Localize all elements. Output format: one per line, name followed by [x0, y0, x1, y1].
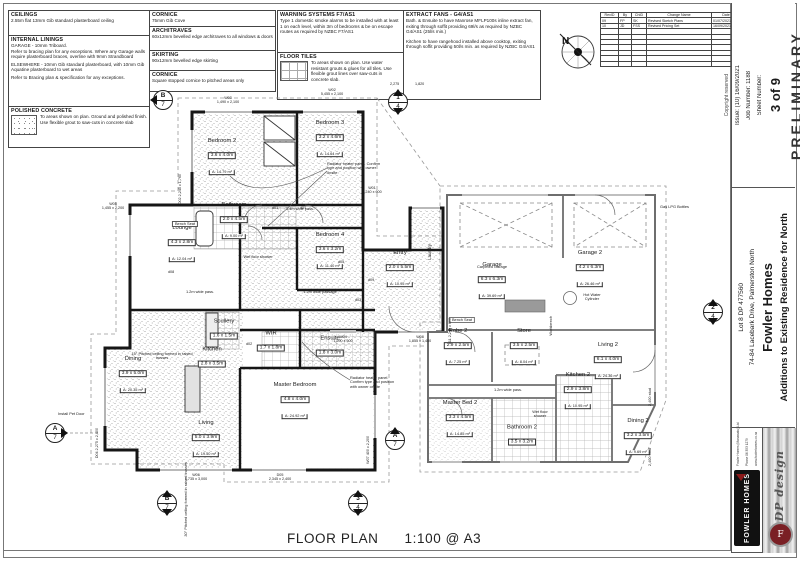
door-label-d11: d11 2,245 x 600: [448, 318, 452, 344]
room-label-dining: Dining3.9 x 5.0mA: 20.35 m²: [119, 356, 147, 396]
passage-note-12c: 1.2m wide pass.: [494, 388, 522, 392]
plan-scale-text: 1:100 @ A3: [405, 531, 482, 546]
room-label-master-bedroom: Master Bedroom4.8 x 4.0mA: 24.92 m²: [274, 382, 317, 422]
room-label-garage2: Garage 24.2 x 6.3mA: 26.46 m²: [576, 250, 604, 290]
room-label-wir: WIR1.7 x 1.8m: [257, 331, 285, 354]
door-tag-d01b: d01: [300, 206, 306, 210]
door-label-d04: D04 2,275 x 2,400: [95, 428, 99, 458]
wet-floor-note-2: Wet floor shower: [526, 410, 554, 419]
window-label-w08: W081,855 x 1,400: [409, 335, 431, 343]
section-marker-a7-mid: A7: [385, 430, 405, 450]
room-label-lounge: Lounge4.3 x 2.8mA: 12.04 m²: [168, 225, 196, 265]
north-label: N: [562, 36, 569, 47]
window-label-w04: W041,290 x 600: [333, 335, 352, 343]
section-marker-a7-left: A7: [45, 423, 65, 443]
room-label-living: Living5.0 x 3.9mA: 19.50 m²: [192, 420, 220, 460]
door-label-d02: D02 2,245 x 1,760: [178, 174, 182, 204]
door-tag-d09: d09: [368, 278, 374, 282]
window-label-w07: W07 400 x 2,200: [366, 436, 370, 464]
window-label-w01: W013,240 x 600: [362, 186, 381, 194]
door-label-d05: D052,345 x 2,400: [269, 473, 291, 481]
hot-water-cylinder: [564, 292, 577, 305]
door-tag-d08: d08: [168, 270, 174, 274]
room-label-bathroom: Bathroom2.0 x 4.5mA: 9.00 m²: [220, 202, 248, 242]
room-label-entry: Entry2.0 x 5.5mA: 10.95 m²: [386, 250, 414, 290]
room-label-scullery: Scullery1.6 x 1.5m: [210, 319, 238, 342]
door-tag-d03: d03: [355, 298, 361, 302]
window-label-w02: W025,455 x 2,100: [321, 88, 343, 96]
plan-title-text: FLOOR PLAN: [287, 531, 379, 546]
section-marker-b7-top: B7: [153, 90, 173, 110]
bench-seat-note-1: Bench Seat: [172, 221, 198, 227]
elevation-marker-1-top: 14: [388, 92, 408, 112]
stud-height-note-1: 2,400 stud: [648, 388, 652, 406]
room-label-kitchen: Kitchen2.8 x 3.5m: [198, 347, 226, 370]
section-marker-b7-bottom: B7: [157, 493, 177, 513]
room-label-living2: Living 26.1 x 4.0mA: 24.36 m²: [594, 342, 622, 382]
door-tag-d01a: d01: [272, 206, 278, 210]
door-tag-d05: d05: [338, 260, 344, 264]
pitched-ceiling-15-note: 15° Pitched ceiling formed in raised tru…: [131, 352, 193, 361]
room-label-store: Store3.5 x 2.5mA: 8.04 m²: [510, 328, 538, 368]
window-label-w03: W031,490 x 2,100: [217, 96, 239, 104]
room-label-laundry: Laundry: [427, 244, 432, 260]
wet-floor-note-1: Wet floor shower: [243, 255, 273, 259]
door-tag-d02: d02: [246, 342, 252, 346]
dim-top-b: 1,820: [415, 82, 424, 86]
plan-title: FLOOR PLAN1:100 @ A3: [287, 531, 507, 546]
workbench-note: Workbench: [549, 316, 553, 336]
room-label-bedroom2: Bedroom 23.6 x 4.0mA: 14.79 m²: [208, 138, 236, 178]
radiator-note-2: Radiator heater panel. Confirm type and …: [350, 376, 400, 389]
carpeted-garage-note: Carpeted Garage: [477, 265, 507, 269]
passage-note-12a: 1.2m wide pass.: [186, 290, 214, 294]
drawing-sheet: { "plan": { "title": "FLOOR PLAN", "scal…: [0, 0, 800, 563]
gas-bottles-note: Gas LPG Bottles: [660, 205, 694, 209]
bathtub: [196, 211, 213, 246]
stud-height-note-2: 2,400 stud: [648, 448, 652, 466]
bench-seat-note-2: Bench Seat: [449, 317, 475, 323]
room-label-kitchen2: Kitchen 22.9 x 3.8mA: 10.95 m²: [564, 372, 592, 412]
room-label-master-bed2: Master Bed 23.3 x 4.5mA: 14.85 m²: [443, 400, 477, 440]
kitchen-island: [185, 366, 200, 412]
window-label-w06: W061,735 x 3,000: [185, 473, 207, 481]
passage-note-12b: 1.2m wide passage: [303, 290, 337, 294]
north-arrow: N: [560, 34, 594, 68]
hwc-note: Hot Water Cylinder: [577, 293, 607, 302]
radiator-note-1: Radiator heater panel. Confirm type and …: [327, 162, 381, 175]
elevation-marker-2-right: 24: [703, 302, 723, 322]
window-label-w05: W051,455 x 2,200: [102, 202, 124, 210]
room-label-bathroom2: Bathroom 23.5 x 3.2m: [507, 425, 537, 448]
elevation-marker-3-bottom: 34: [348, 493, 368, 513]
pet-door-note: Install Pet Door: [58, 412, 100, 416]
room-label-bedroom4: Bedroom 43.6 x 3.2mA: 11.40 m²: [316, 232, 344, 272]
room-label-bedroom3: Bedroom 33.2 x 4.6mA: 14.64 m²: [316, 120, 344, 160]
